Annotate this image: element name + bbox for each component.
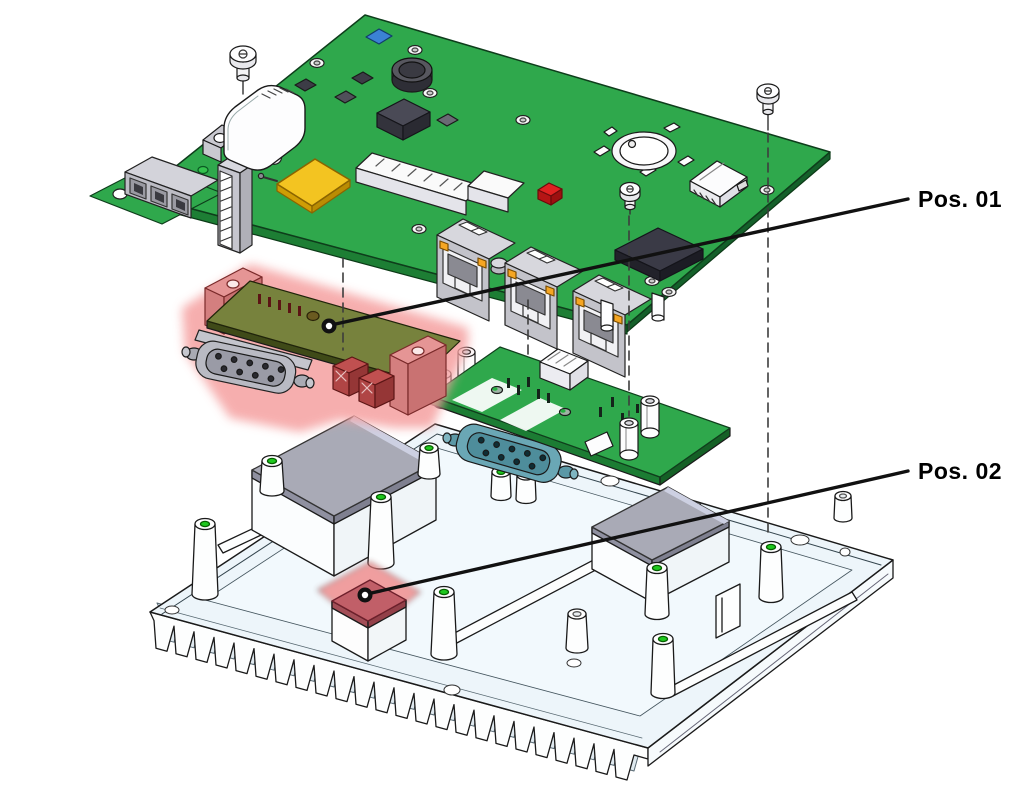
- boss-plain: [834, 492, 852, 523]
- usb-stack-connector: [218, 157, 252, 253]
- led-indicator: [198, 167, 208, 174]
- boss: [418, 443, 440, 479]
- screw-1: [230, 46, 256, 94]
- boss: [260, 456, 284, 497]
- boss: [192, 519, 218, 601]
- pos02-label: Pos. 02: [918, 457, 1002, 485]
- boss: [431, 587, 457, 661]
- hex-standoff: [641, 396, 659, 438]
- pos01-label: Pos. 01: [918, 185, 1002, 213]
- serial-interface-module: [182, 264, 468, 432]
- exploded-view-figure: Pos. 01 Pos. 02: [0, 0, 1024, 798]
- boss: [368, 492, 394, 570]
- boss-plain: [566, 609, 588, 653]
- boss: [645, 563, 669, 620]
- module-hole: [307, 312, 319, 321]
- screw-2: [757, 84, 779, 130]
- technical-drawing: [0, 0, 1024, 798]
- hex-standoff: [620, 418, 638, 460]
- boss: [759, 542, 783, 603]
- buzzer: [392, 58, 432, 92]
- boss: [651, 634, 675, 699]
